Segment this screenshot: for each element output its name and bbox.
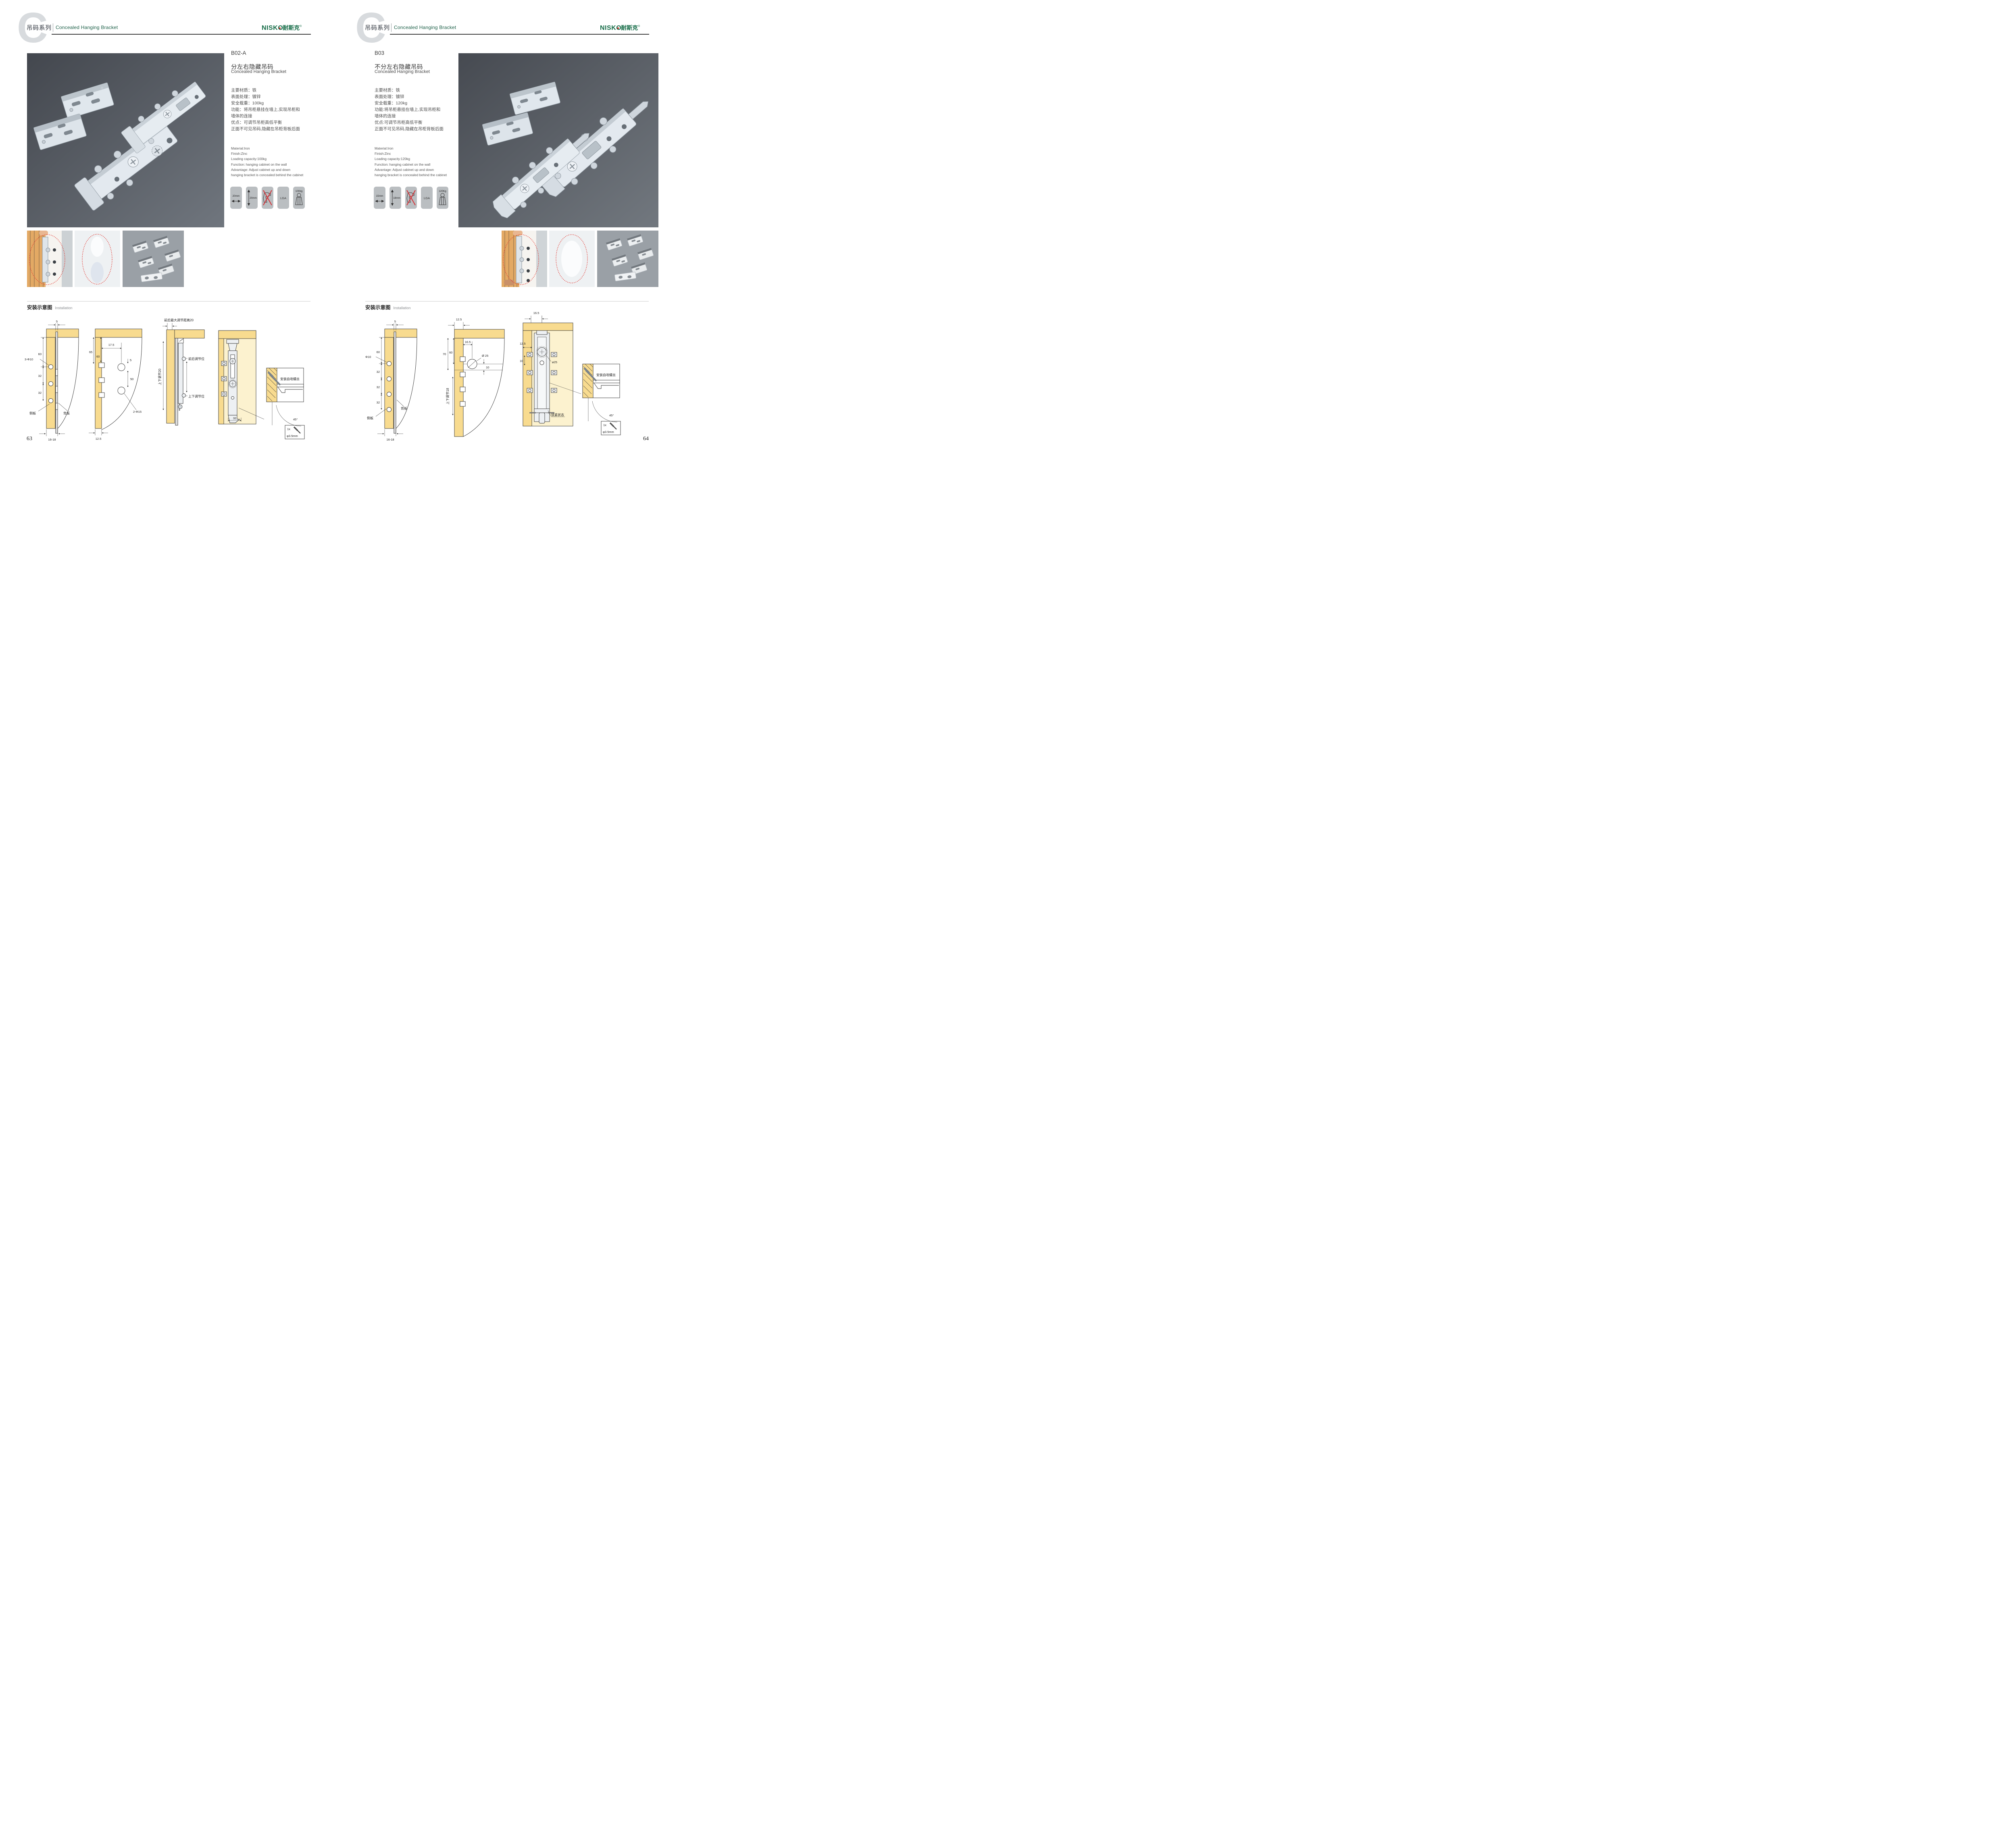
svg-text:前后调节位: 前后调节位 [188, 357, 204, 361]
svg-text:45°: 45° [609, 414, 614, 417]
specs-en: Material:Iron Finish:Zinc Loading capaci… [375, 146, 459, 178]
spec-line: 安全载重：100kg [231, 100, 314, 106]
product-code: B03 [375, 50, 384, 56]
svg-text:φ3.5mm: φ3.5mm [287, 434, 298, 438]
diagram-screw-detail: 安装自攻螺丝 45° 1x φ3.5mm [580, 361, 631, 439]
thumb-installed-on-panel [502, 231, 547, 287]
catalog-spread: C 吊码系列 Concealed Hanging Bracket NISKO耐斯… [0, 0, 676, 462]
installation-heading: 安装示意图Installation [27, 303, 73, 311]
svg-text:16.5: 16.5 [533, 311, 539, 315]
spec-line-en: Function: hanging cabinet on the wall [375, 162, 459, 167]
svg-text:17.5: 17.5 [108, 343, 115, 347]
svg-text:LGA: LGA [280, 196, 286, 200]
product-photo [458, 53, 658, 227]
lga-cert-icon: LGA [421, 187, 433, 209]
spec-line-en: Loading capacity:100kg [231, 156, 314, 162]
svg-text:前后最大调节距离20: 前后最大调节距离20 [164, 318, 194, 322]
svg-text:60: 60 [377, 350, 380, 354]
svg-text:1x: 1x [287, 427, 290, 431]
diagram-side-panel-drilling: 5 60 3-Φ10 32 32 侧板 背板 16-18 [22, 318, 91, 441]
feature-icon-row: 15mm 18mm LGA [374, 187, 448, 209]
thumb-concealed-back [549, 231, 595, 287]
load-weight-icon: 120Kg [437, 187, 448, 209]
svg-text:12.5: 12.5 [520, 342, 526, 345]
spec-line-en: Material:Iron [231, 146, 314, 151]
spec-line: 功能：将吊柜悬挂在墙上,实现吊柜和 [231, 106, 314, 113]
specs-zh: 主要材质：铁 表面处理：镀锌 安全载重：120kg 功能:将吊柜悬挂在墙上,实现… [375, 87, 457, 132]
svg-text:背板: 背板 [63, 411, 70, 415]
header-rule [52, 34, 311, 35]
spec-line-en: Finish:Zinc [231, 151, 314, 156]
svg-text:安装自攻螺丝: 安装自攻螺丝 [596, 373, 616, 377]
svg-text:70: 70 [443, 352, 446, 356]
page-number: 64 [643, 436, 649, 442]
thumb-wall-plates [597, 231, 658, 287]
spec-line-en: hanging bracket is concealed behind the … [231, 173, 314, 178]
product-title-en: Concealed Hanging Bracket [375, 69, 430, 74]
height-arrow-icon: 20mm [246, 187, 258, 209]
spec-line: 功能:将吊柜悬挂在墙上,实现吊柜和 [375, 106, 457, 113]
svg-text:上下调节18: 上下调节18 [446, 388, 450, 404]
svg-text:16-18: 16-18 [386, 438, 394, 441]
svg-text:侧板: 侧板 [29, 411, 36, 415]
svg-text:φ3.5mm: φ3.5mm [603, 430, 614, 434]
svg-text:Ø 25: Ø 25 [482, 354, 488, 358]
catalog-page-left: C 吊码系列 Concealed Hanging Bracket NISKO耐斯… [0, 0, 338, 462]
svg-text:10: 10 [520, 359, 523, 363]
svg-text:45°: 45° [293, 418, 298, 421]
svg-text:ø25: ø25 [552, 360, 557, 364]
spec-line-en: Material:Iron [375, 146, 459, 151]
svg-text:背板: 背板 [401, 406, 407, 410]
section-rule [365, 301, 649, 302]
product-title-en: Concealed Hanging Bracket [231, 69, 286, 74]
svg-text:12.5: 12.5 [96, 437, 102, 441]
header-divider [53, 23, 53, 32]
spec-line: 安全载重：120kg [375, 100, 457, 106]
svg-text:60: 60 [449, 351, 452, 354]
svg-text:10: 10 [486, 366, 489, 369]
load-weight-icon: 100kg [293, 187, 305, 209]
installation-title-en: Installation [394, 306, 411, 310]
svg-text:上下调节位: 上下调节位 [188, 394, 204, 398]
spec-line: 优点:可调节吊柜高低平衡 [375, 119, 457, 126]
svg-text:15mm: 15mm [376, 195, 383, 198]
svg-text:1x: 1x [603, 423, 606, 427]
page-number: 63 [27, 436, 32, 442]
thumb-concealed-back [75, 231, 120, 287]
svg-text:5: 5 [130, 358, 131, 362]
spec-line-en: hanging bracket is concealed behind the … [375, 173, 459, 178]
diagram-bracket-front-view: 32 [218, 322, 262, 429]
svg-text:5: 5 [56, 320, 58, 323]
svg-text:3-Φ10: 3-Φ10 [25, 358, 33, 361]
svg-text:32: 32 [377, 385, 380, 389]
product-code: B02-A [231, 50, 246, 56]
svg-text:12.5: 12.5 [456, 318, 462, 321]
lga-cert-icon: LGA [277, 187, 289, 209]
svg-text:32: 32 [377, 401, 380, 404]
svg-text:20mm: 20mm [250, 197, 257, 200]
svg-text:100kg: 100kg [296, 190, 303, 193]
header-divider [391, 23, 392, 32]
svg-text:60: 60 [38, 352, 42, 356]
svg-text:120Kg: 120Kg [439, 190, 446, 193]
spec-line: 墙体的连接 [375, 113, 457, 119]
svg-text:32: 32 [233, 416, 236, 420]
installation-heading: 安装示意图Installation [365, 303, 411, 311]
svg-text:16.5: 16.5 [465, 340, 471, 344]
specs-zh: 主要材质：铁 表面处理：镀锌 安全载重：100kg 功能：将吊柜悬挂在墙上,实现… [231, 87, 314, 132]
spec-line: 表面处理：镀锌 [231, 94, 314, 100]
specs-en: Material:Iron Finish:Zinc Loading capaci… [231, 146, 314, 178]
series-title-zh: 吊码系列 [365, 23, 390, 32]
svg-text:65: 65 [89, 350, 92, 354]
header-rule [390, 34, 649, 35]
installation-title-en: Installation [55, 306, 73, 310]
registered-mark: ® [638, 25, 640, 28]
spec-line: 主要材质：铁 [375, 87, 457, 94]
brand-logo: NISKO耐斯克® [262, 24, 302, 32]
brand-logo-zh: 耐斯克 [283, 25, 300, 31]
spec-line-en: Finish:Zinc [375, 151, 459, 156]
svg-text:安装自攻螺丝: 安装自攻螺丝 [280, 377, 300, 381]
feature-icon-row: 20mm 20mm LGA [230, 187, 305, 209]
svg-text:60: 60 [96, 355, 100, 358]
width-arrow-icon: 20mm [230, 187, 242, 209]
svg-text:20mm: 20mm [233, 195, 240, 198]
spec-line: 表面处理：镀锌 [375, 94, 457, 100]
product-photo [27, 53, 224, 227]
svg-text:18mm: 18mm [393, 197, 400, 200]
spec-line: 正面不可见吊码,隐藏在吊柜背板后面 [231, 126, 314, 132]
installation-title-zh: 安装示意图 [27, 305, 52, 310]
svg-text:锁紧状态: 锁紧状态 [551, 413, 564, 417]
svg-text:LGA: LGA [424, 196, 430, 200]
section-rule [27, 301, 310, 302]
thumb-installed-on-panel [27, 231, 73, 287]
svg-text:Φ10: Φ10 [365, 355, 371, 359]
spec-line: 正面不可见吊码,隐藏在吊柜背板后面 [375, 126, 457, 132]
width-arrow-icon: 15mm [374, 187, 385, 209]
svg-text:32: 32 [38, 391, 42, 395]
height-arrow-icon: 18mm [389, 187, 401, 209]
spec-line-en: Function: hanging cabinet on the wall [231, 162, 314, 167]
brand-logo-zh: 耐斯克 [621, 25, 638, 31]
no-drill-icon [262, 187, 273, 209]
brand-logo: NISKO耐斯克® [600, 24, 640, 32]
diagram-adjustment-side-view: 前后最大调节距离20 上下调节20 前后调节位 上下调节位 [159, 316, 220, 439]
svg-text:上下调节20: 上下调节20 [158, 368, 162, 385]
spec-line-en: Advantage: Adjust cabinet up and down [375, 167, 459, 173]
svg-text:5: 5 [394, 320, 396, 323]
diagram-back-panel-drilling: 12.5 70 60 16.5 Ø 25 10 上下调节18 [442, 316, 511, 441]
diagram-side-panel-drilling: 5 60 Φ10 32 32 32 背板 侧板 16-18 [360, 318, 429, 441]
series-title-en: Concealed Hanging Bracket [56, 25, 118, 30]
installation-title-zh: 安装示意图 [365, 305, 391, 310]
series-title-zh: 吊码系列 [27, 23, 52, 32]
registered-mark: ® [300, 25, 302, 28]
svg-text:16-18: 16-18 [48, 438, 56, 441]
diagram-bracket-front-view: 16.5 12.5 [520, 310, 578, 433]
svg-text:50: 50 [130, 377, 133, 381]
series-title-en: Concealed Hanging Bracket [394, 25, 456, 30]
spec-line: 优点：可调节吊柜高低平衡 [231, 119, 314, 126]
spec-line-en: Advantage: Adjust cabinet up and down [231, 167, 314, 173]
svg-text:32: 32 [38, 374, 42, 378]
svg-text:2-Φ15: 2-Φ15 [133, 410, 142, 414]
no-drill-icon [405, 187, 417, 209]
diagram-back-panel-drilling: 17.5 65 60 5 50 2-Φ15 12.5 [89, 318, 161, 441]
svg-text:侧板: 侧板 [367, 416, 373, 420]
spec-line-en: Loading capacity:120kg [375, 156, 459, 162]
thumb-wall-plates [123, 231, 184, 287]
spec-line: 墙体的连接 [231, 113, 314, 119]
diagram-screw-detail: 安装自攻螺丝 45° 1x φ3.5mm [264, 365, 314, 443]
catalog-page-right: C 吊码系列 Concealed Hanging Bracket NISKO耐斯… [338, 0, 676, 462]
svg-text:32: 32 [377, 370, 380, 374]
spec-line: 主要材质：铁 [231, 87, 314, 94]
